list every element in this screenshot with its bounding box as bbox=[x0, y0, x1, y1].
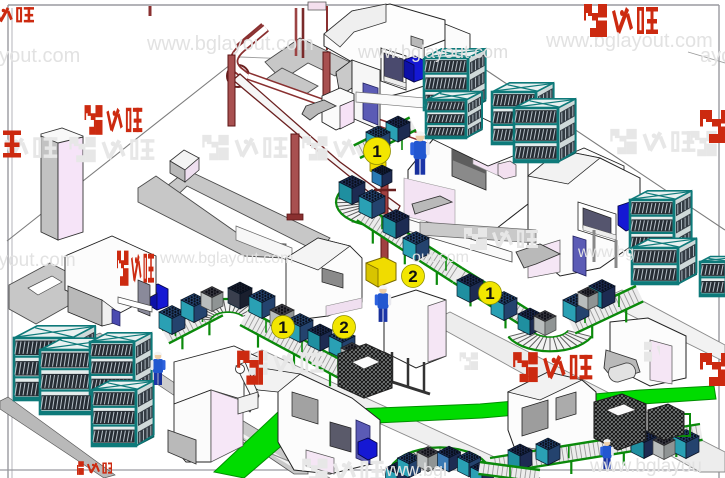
svg-text:www.bgl: www.bgl bbox=[379, 460, 447, 478]
svg-text:1: 1 bbox=[485, 284, 494, 303]
svg-text:www.bg: www.bg bbox=[577, 244, 634, 261]
svg-text:www.bglayout.com: www.bglayout.com bbox=[357, 42, 508, 62]
svg-text:ayout.com: ayout.com bbox=[0, 250, 76, 271]
svg-text:www.bglayout.com: www.bglayout.com bbox=[545, 30, 713, 52]
svg-text:ayout.com: ayout.com bbox=[0, 45, 80, 67]
svg-text:ayo: ayo bbox=[700, 45, 725, 67]
svg-text:www.bglayout.com: www.bglayout.com bbox=[159, 250, 293, 267]
svg-text:2: 2 bbox=[408, 267, 417, 286]
svg-text:1: 1 bbox=[372, 142, 381, 161]
svg-text:www.bglayout.com: www.bglayout.com bbox=[146, 33, 314, 55]
svg-text:www.bglayou: www.bglayou bbox=[589, 456, 702, 477]
svg-text:2: 2 bbox=[339, 318, 348, 337]
svg-text:1: 1 bbox=[278, 318, 287, 337]
svg-text:out.com: out.com bbox=[412, 249, 469, 266]
